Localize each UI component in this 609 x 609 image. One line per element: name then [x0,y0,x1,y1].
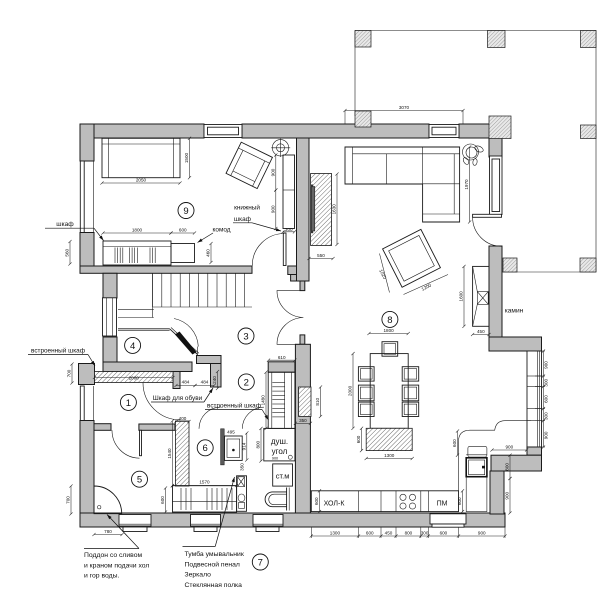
svg-text:400: 400 [179,416,187,421]
svg-text:Поддон со сливом: Поддон со сливом [84,552,142,559]
svg-text:900: 900 [270,205,275,213]
svg-text:ст.м: ст.м [276,472,290,481]
svg-text:и гор воды.: и гор воды. [84,573,119,580]
svg-text:600: 600 [452,439,457,447]
svg-text:2050: 2050 [136,177,147,182]
svg-text:1480: 1480 [261,395,266,406]
svg-text:Тумба умывальник: Тумба умывальник [185,550,244,558]
svg-text:900: 900 [272,456,278,460]
svg-text:600: 600 [314,497,319,505]
svg-text:5: 5 [137,475,142,486]
svg-text:300: 300 [544,412,549,420]
svg-text:и краном подачи хол: и краном подачи хол [84,563,149,570]
svg-text:1600: 1600 [459,291,464,302]
svg-text:600: 600 [544,395,549,403]
svg-text:600: 600 [366,530,374,535]
svg-text:240: 240 [212,376,217,384]
svg-text:7: 7 [258,557,263,568]
svg-text:300: 300 [421,530,429,535]
svg-text:угол: угол [272,447,288,456]
svg-text:встроенный шкаф: встроенный шкаф [31,347,85,355]
svg-text:600: 600 [440,530,448,535]
svg-text:600: 600 [356,435,361,443]
svg-text:1: 1 [126,398,131,409]
svg-text:комод: комод [213,227,231,234]
svg-text:3070: 3070 [399,105,410,110]
svg-text:700: 700 [67,369,72,377]
svg-text:4: 4 [130,341,135,352]
svg-text:495: 495 [227,430,235,435]
svg-text:460: 460 [206,249,211,257]
svg-text:484: 484 [182,380,190,385]
svg-text:3: 3 [243,331,248,342]
svg-text:1540: 1540 [167,448,172,459]
svg-text:1500: 1500 [184,152,189,163]
svg-text:камин: камин [505,308,524,315]
svg-text:560: 560 [65,248,70,256]
svg-text:2: 2 [244,377,249,388]
svg-text:600: 600 [457,497,462,505]
svg-text:484: 484 [201,380,209,385]
svg-text:1970: 1970 [464,179,469,190]
svg-text:900: 900 [505,491,510,499]
svg-text:1300: 1300 [384,453,395,458]
svg-text:1570: 1570 [199,480,210,485]
svg-text:800: 800 [256,440,261,448]
svg-text:600: 600 [160,496,165,504]
svg-text:800: 800 [505,463,510,471]
svg-text:1300: 1300 [330,530,341,535]
svg-text:шкаф: шкаф [234,216,251,223]
svg-text:300: 300 [544,378,549,386]
svg-text:450: 450 [385,530,393,535]
svg-text:450: 450 [477,329,485,334]
svg-text:шкаф: шкаф [56,221,74,228]
svg-text:900: 900 [478,530,486,535]
svg-text:900: 900 [505,444,513,449]
svg-text:9: 9 [183,206,188,217]
svg-text:300: 300 [285,227,293,232]
svg-text:Стеклянная полка: Стеклянная полка [185,582,243,589]
svg-text:700: 700 [66,496,71,504]
svg-text:810: 810 [315,397,320,405]
svg-text:книжный: книжный [234,204,260,212]
svg-text:610: 610 [278,355,286,360]
svg-text:350: 350 [299,418,307,423]
svg-text:900: 900 [544,431,549,439]
svg-text:6: 6 [203,443,208,454]
svg-text:1630: 1630 [332,204,337,215]
svg-text:ХОЛ-К: ХОЛ-К [324,501,346,508]
svg-text:600: 600 [179,227,187,232]
svg-text:2000: 2000 [129,375,140,380]
svg-text:ПМ: ПМ [437,501,448,508]
svg-text:Шкаф для обуви: Шкаф для обуви [153,394,203,402]
svg-text:900: 900 [270,168,275,176]
svg-text:встроенный шкаф: встроенный шкаф [207,402,261,410]
svg-text:душ.: душ. [271,437,288,446]
svg-text:350: 350 [240,463,245,471]
svg-text:800: 800 [405,530,413,535]
svg-text:2000: 2000 [348,385,353,396]
svg-text:900: 900 [544,361,549,369]
svg-text:Зеркало: Зеркало [185,572,212,579]
svg-text:780: 780 [104,529,112,534]
svg-text:1800: 1800 [132,227,143,232]
svg-text:1800: 1800 [383,328,394,333]
svg-text:550: 550 [317,253,325,258]
svg-text:Подвесной пенал: Подвесной пенал [185,561,240,569]
svg-text:8: 8 [387,315,392,326]
